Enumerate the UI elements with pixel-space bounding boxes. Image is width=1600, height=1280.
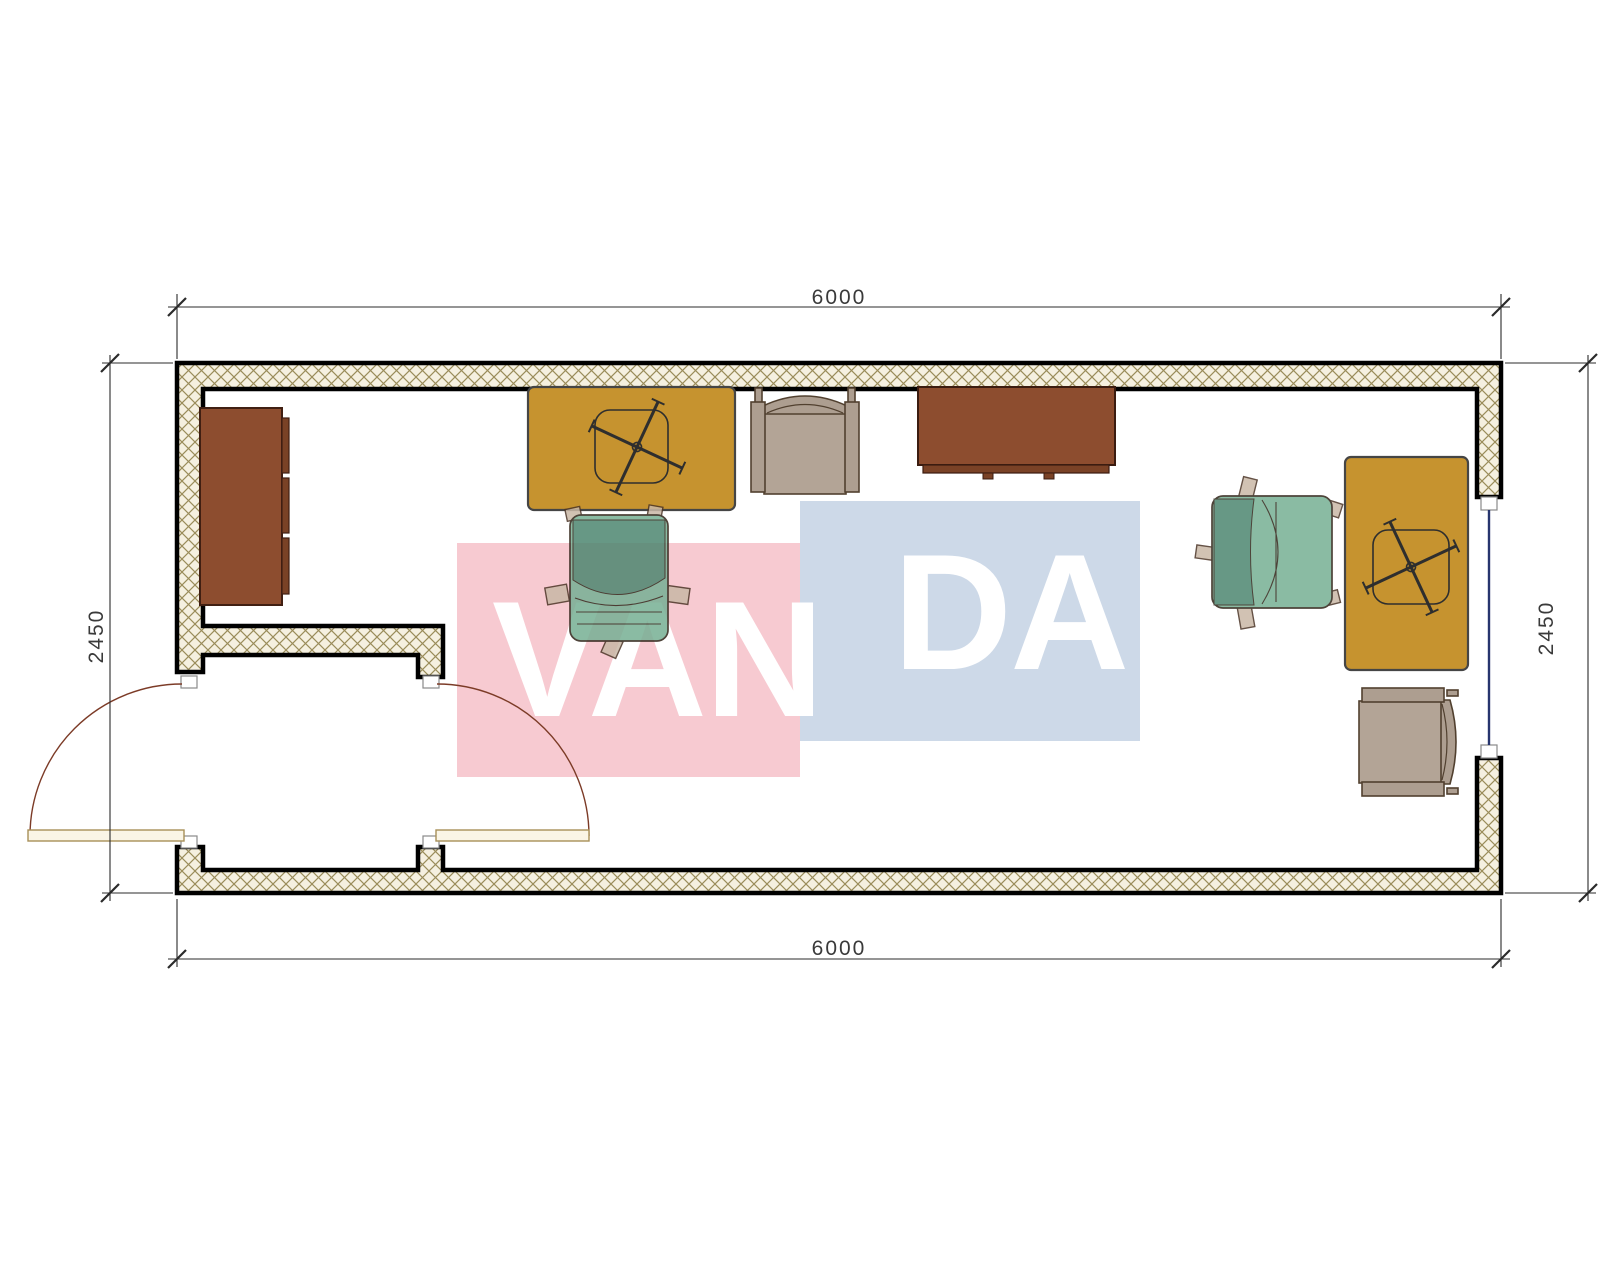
door-swing-arc [437,684,589,836]
door-jamb [423,676,439,688]
window-jamb [1481,745,1497,758]
visitor-armchair-top [751,388,859,494]
office-chair-right [1195,477,1343,629]
dimension-label-left: 2450 [85,609,108,664]
door-leaf [28,830,184,841]
dimension-label-right: 2450 [1535,601,1558,656]
wall-outline-lower [177,758,1501,893]
floor-plan-drawing: 6000 6000 2450 2450 [0,0,1600,1280]
floor-plan-page: VAN DA [0,0,1600,1280]
door-swing-arc [30,684,182,836]
office-chair-left [545,505,690,659]
visitor-armchair-bottom [1359,688,1458,796]
sideboard-table [918,387,1115,479]
dimension-left [101,354,173,902]
door-leaf [436,830,589,841]
entrance-doors [28,684,589,841]
dimension-label-bottom: 6000 [812,937,867,960]
dimension-label-top: 6000 [812,286,867,309]
side-cabinet [200,408,289,605]
window-jamb [1481,497,1497,510]
desk-right [1345,457,1478,670]
door-jamb [181,676,197,688]
desk-left [528,381,735,514]
